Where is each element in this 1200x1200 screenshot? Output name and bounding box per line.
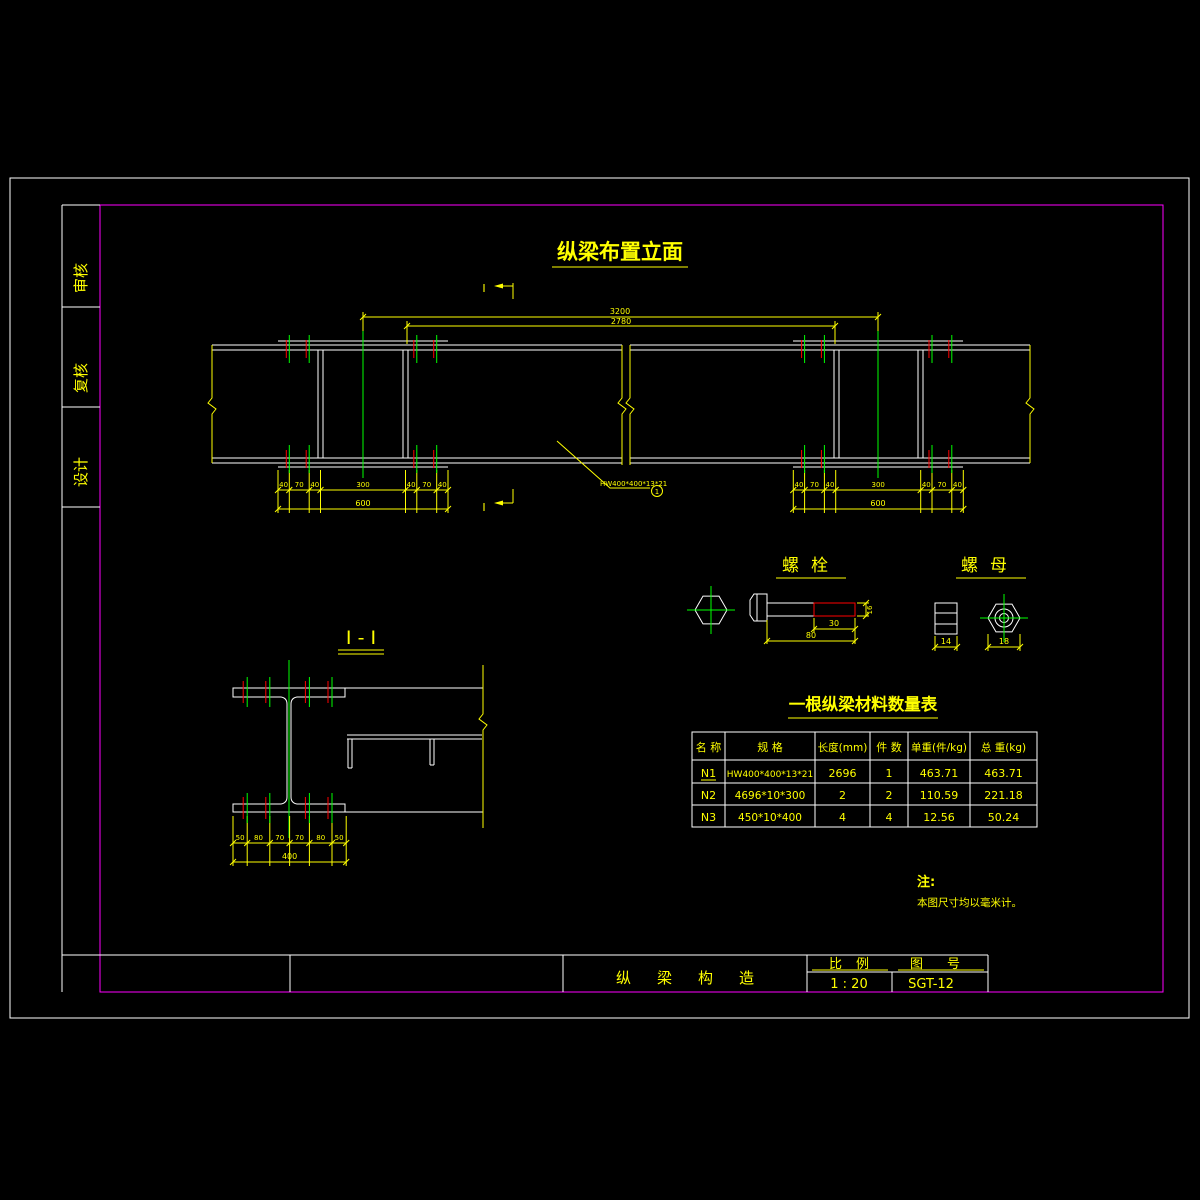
sidebar: 审核 复核 设计 [72,263,90,487]
table-header: 总 重(kg) [981,741,1026,754]
leader-label: HW400*400*13*21 [600,480,667,488]
drawing-sheet: 审核 复核 设计 纵梁布置立面 3200 2780 [0,0,1200,1200]
section-view: I - I 50 80 70 70 80 50 [233,627,487,862]
table-cell: 463.71 [984,767,1023,780]
sidebar-item-audit: 审核 [72,263,90,293]
section-title: I - I [346,627,376,649]
table-header: 件 数 [876,741,902,754]
table-cell: 2 [886,789,893,802]
table-cell: 1 [886,767,893,780]
section-label-bottom: I [482,501,485,514]
dim-label: 70 [275,834,284,842]
table-cell: 110.59 [920,789,959,802]
bolt-title: 螺栓 [782,556,840,576]
table-cell: 2 [839,789,846,802]
nut-title: 螺母 [961,556,1019,576]
table-header: 规 格 [757,740,783,754]
dim-label-width: 18 [999,637,1009,646]
note-label: 注: [917,874,935,890]
dim-label: 70 [295,481,304,489]
dim-label: 50 [335,834,344,842]
sheet-borders [10,178,1189,1018]
table-header: 长度(mm) [818,741,868,754]
dim-label-inner: 2780 [611,317,631,326]
scale-label: 比例 [829,957,883,972]
mid-plate-detail [347,735,482,768]
dim-label-total-left: 600 [355,499,370,508]
dim-label-length: 80 [806,631,816,640]
dim-label-thread: 30 [829,619,839,628]
material-table-title: 一根纵梁材料数量表 [789,694,938,714]
dim-label: 70 [295,834,304,842]
table-cell: 12.56 [923,811,955,824]
bolt-detail: 螺栓 30 80 16 [687,556,874,641]
elevation-view: 纵梁布置立面 3200 2780 [208,240,1034,514]
table-cell: 4 [839,811,846,824]
table-cell: N3 [701,811,716,824]
drawing-number-value: SGT-12 [908,977,954,992]
section-label-top: I [482,282,485,295]
dim-label: 50 [236,834,245,842]
drawing-number-label: 图号 [910,957,984,972]
beam-outline [212,341,1030,467]
table-cell: 2696 [829,767,857,780]
table-header: 名 称 [696,740,722,754]
note: 注: 本图尺寸均以毫米计。 [917,874,1022,909]
table-cell: 450*10*400 [738,812,802,824]
dim-label: 70 [937,481,946,489]
break-lines [208,345,1034,465]
dim-label: 70 [810,481,819,489]
table-header: 单重(件/kg) [911,741,967,754]
table-cell: 50.24 [988,811,1020,824]
sidebar-item-review: 复核 [72,363,90,393]
outer-border [10,178,1189,1018]
beam-leader: HW400*400*13*21 1 [557,441,667,497]
nut-side-view [935,603,957,634]
dim-label-dia: 16 [866,605,874,614]
elevation-title: 纵梁布置立面 [557,240,683,264]
section-break-line [479,665,487,828]
nut-detail: 螺母 14 18 [935,556,1028,647]
dim-label: 300 [356,481,369,489]
bolt-head-side [750,594,767,621]
dim-label-total-right: 600 [870,499,885,508]
material-table: 一根纵梁材料数量表 名 称 规 格 长度(mm) 件 数 单重(件/kg) 总 … [692,694,1037,827]
scale-value: 1 : 20 [830,977,867,992]
dim-label: 70 [422,481,431,489]
table-cell: 463.71 [920,767,959,780]
dim-label-overall: 3200 [610,307,630,316]
cad-drawing-canvas: 审核 复核 设计 纵梁布置立面 3200 2780 [0,0,1200,1200]
table-cell: HW400*400*13*21 [727,770,813,780]
title-block: 纵梁构造 比例 1 : 20 图号 SGT-12 [62,955,988,992]
table-cell: 4 [886,811,893,824]
dim-label: 80 [254,834,263,842]
leader-bubble-number: 1 [655,488,659,496]
dim-label: 300 [872,481,885,489]
dimension-ticks [230,314,1023,865]
section-cut-marker-top: I [482,282,513,299]
section-cut-marker-bottom: I [482,489,513,514]
dim-label-height: 14 [941,637,951,646]
sidebar-item-design: 设计 [72,457,90,487]
note-text: 本图尺寸均以毫米计。 [917,896,1022,909]
table-cell: N2 [701,789,716,802]
table-cell: 221.18 [984,789,1023,802]
table-cell: N1 [701,767,716,780]
bolt-thread-highlight [814,603,855,616]
table-cell: 4696*10*300 [735,790,806,802]
drawing-name: 纵梁构造 [616,969,780,987]
dim-label: 80 [316,834,325,842]
